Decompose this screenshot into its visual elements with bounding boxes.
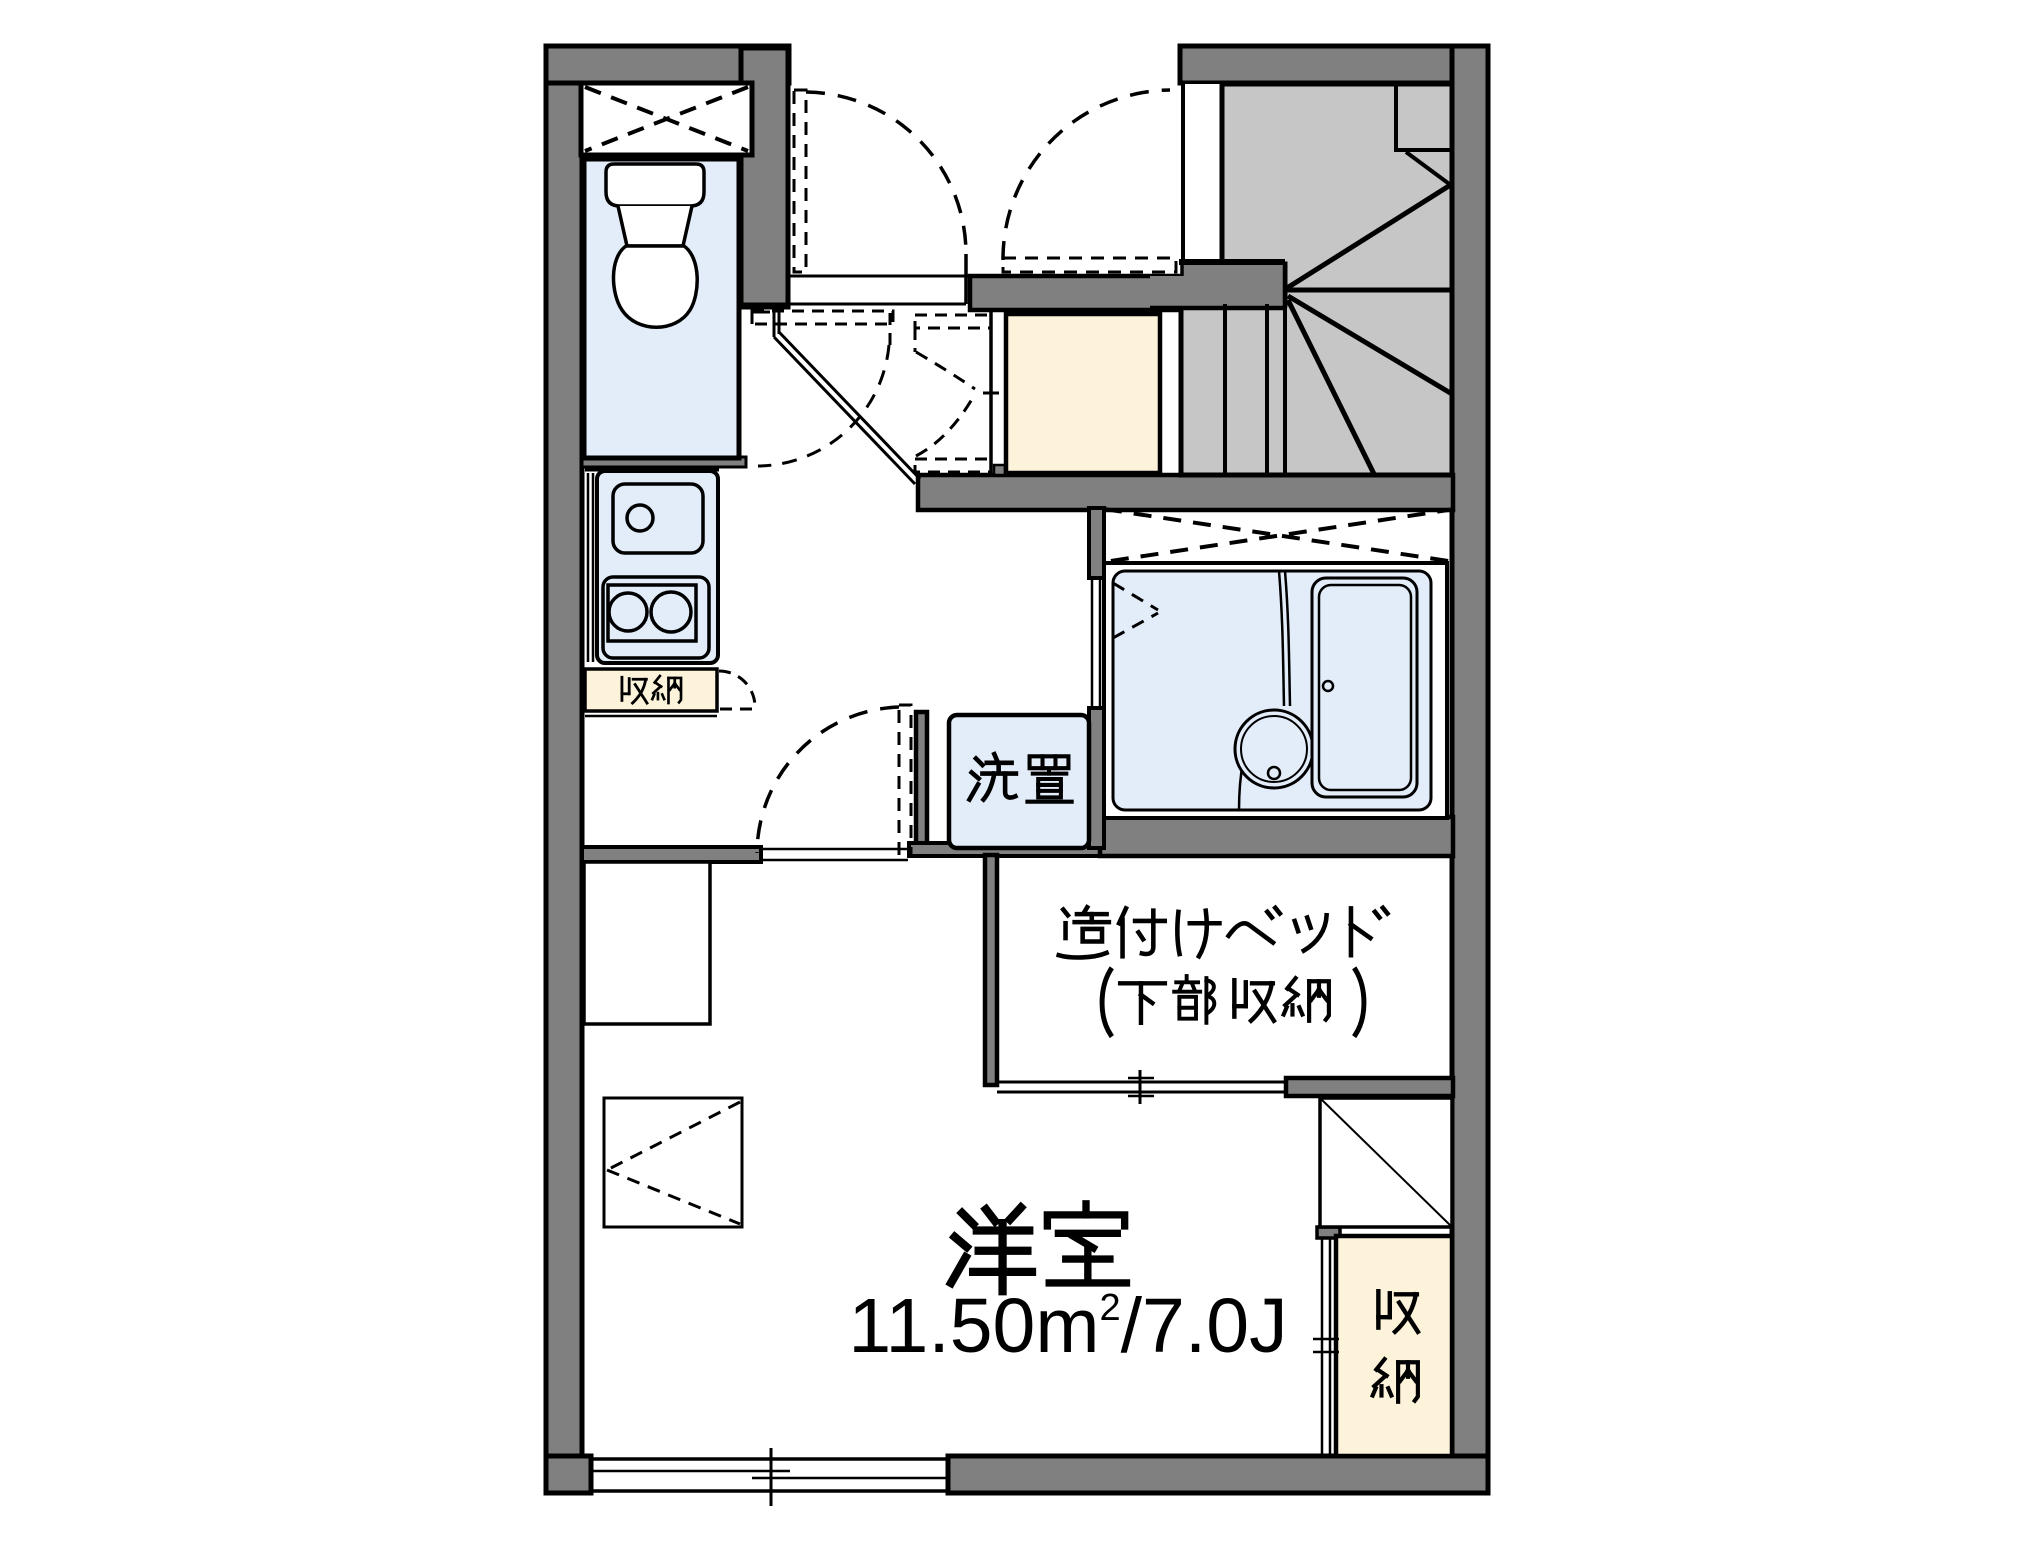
svg-text:11.50m2/7.0J: 11.50m2/7.0J <box>848 1283 1287 1369</box>
